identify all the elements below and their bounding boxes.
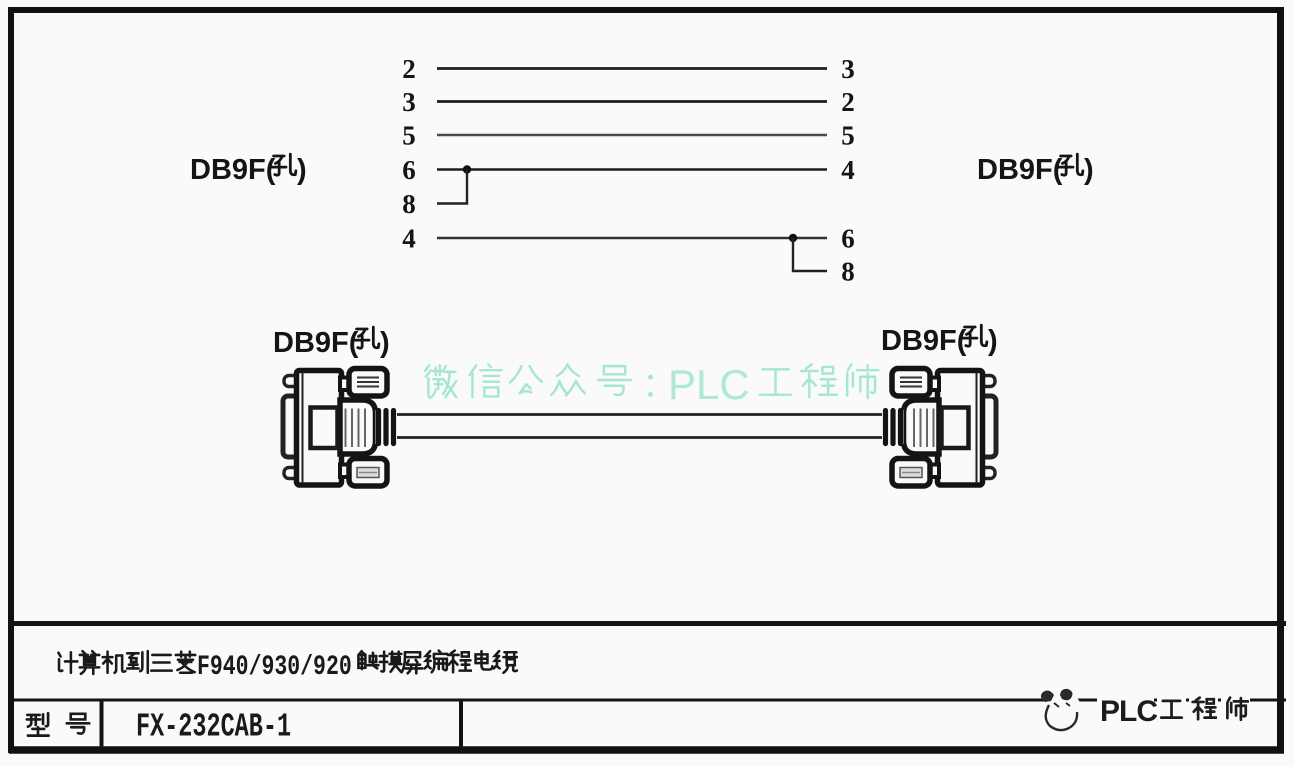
svg-text:3: 3 [841,54,855,84]
svg-text:PLC: PLC [668,361,750,408]
svg-text:5: 5 [841,121,855,151]
svg-text:): ) [297,154,307,186]
svg-text:2: 2 [841,87,855,117]
svg-text:8: 8 [841,257,855,287]
svg-text:): ) [380,327,390,359]
svg-text:4: 4 [841,155,855,185]
svg-text:3: 3 [402,87,416,117]
svg-text:8: 8 [402,189,416,219]
svg-text:): ) [1084,154,1094,186]
svg-text:DB9F(: DB9F( [273,327,359,359]
svg-text:DB9F(: DB9F( [190,154,276,186]
svg-text:DB9F(: DB9F( [977,154,1063,186]
svg-text:5: 5 [402,121,416,151]
svg-text:2: 2 [402,54,416,84]
svg-text:): ) [988,325,998,357]
svg-text:6: 6 [402,155,416,185]
svg-text:6: 6 [841,224,855,254]
svg-text:DB9F(: DB9F( [881,325,967,357]
svg-text:F940/930/920: F940/930/920 [197,652,352,683]
svg-text:FX-232CAB-1: FX-232CAB-1 [136,708,291,746]
svg-text:4: 4 [402,224,416,254]
svg-text:PLC: PLC [1100,695,1157,728]
